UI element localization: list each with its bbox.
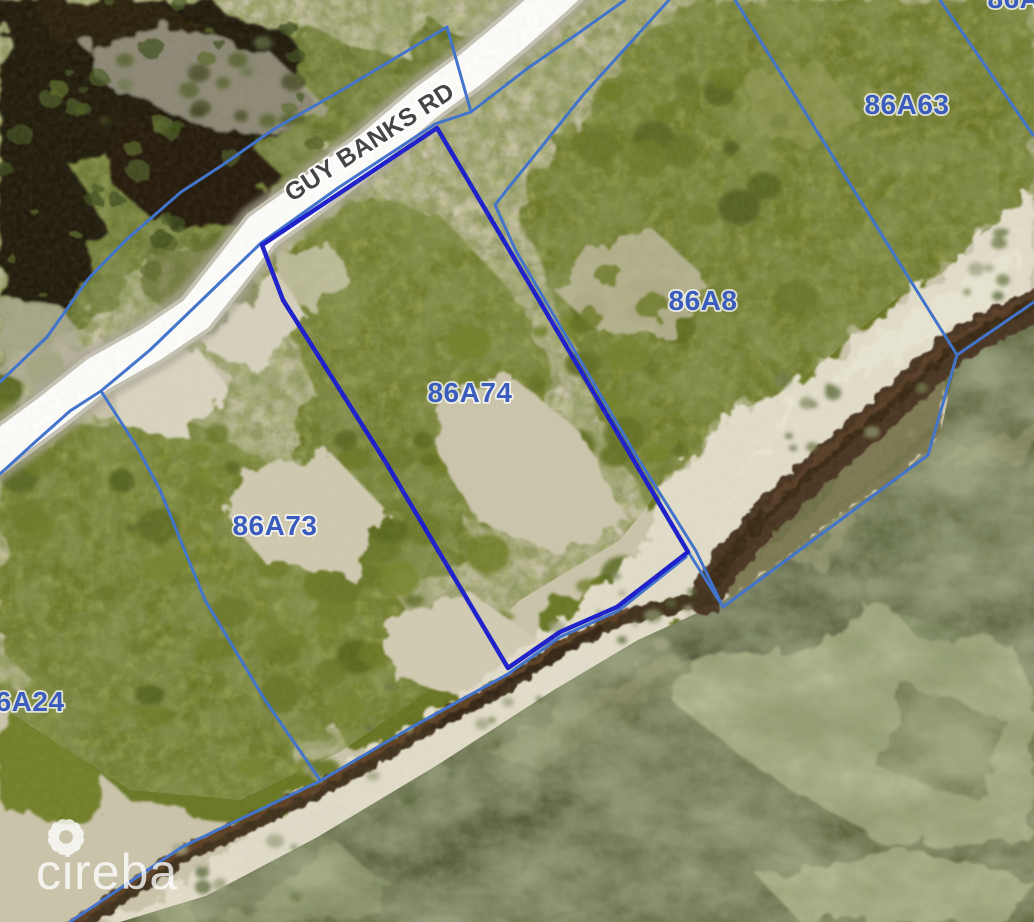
svg-text:86A6: 86A6	[988, 0, 1034, 14]
svg-text:86A73: 86A73	[232, 510, 317, 541]
svg-text:86A24: 86A24	[0, 686, 65, 717]
svg-text:86A63: 86A63	[864, 89, 949, 120]
svg-text:86A8: 86A8	[669, 285, 738, 316]
svg-text:cireba: cireba	[36, 844, 178, 900]
svg-text:86A74: 86A74	[427, 377, 512, 408]
